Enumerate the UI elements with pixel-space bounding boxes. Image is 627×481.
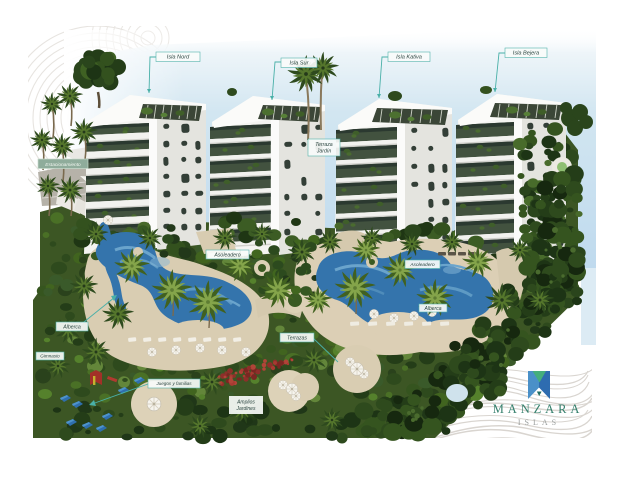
svg-text:Isla Kativa: Isla Kativa (396, 55, 422, 61)
svg-text:Isla Nord: Isla Nord (167, 55, 190, 61)
svg-text:Alberca: Alberca (424, 306, 442, 312)
svg-text:MANZARA: MANZARA (493, 402, 584, 416)
svg-text:Amplios: Amplios (236, 400, 255, 406)
svg-text:Jardín: Jardín (316, 149, 332, 155)
svg-text:Isla Sur: Isla Sur (290, 61, 310, 67)
svg-text:Estacionamiento: Estacionamiento (45, 162, 81, 168)
svg-text:Jardines: Jardines (236, 406, 256, 412)
svg-text:Gimnasio: Gimnasio (40, 354, 60, 359)
svg-text:Isla Bejera: Isla Bejera (513, 51, 539, 57)
svg-text:Terraza: Terraza (315, 142, 333, 148)
svg-text:ISLAS: ISLAS (518, 418, 560, 427)
svg-text:Asoleadero: Asoleadero (213, 252, 240, 258)
svg-text:Juegos y familias: Juegos y familias (155, 381, 192, 386)
svg-text:Alberca: Alberca (62, 324, 81, 330)
svg-text:Terrazas: Terrazas (287, 335, 307, 341)
svg-text:Asoleadero: Asoleadero (409, 262, 435, 268)
